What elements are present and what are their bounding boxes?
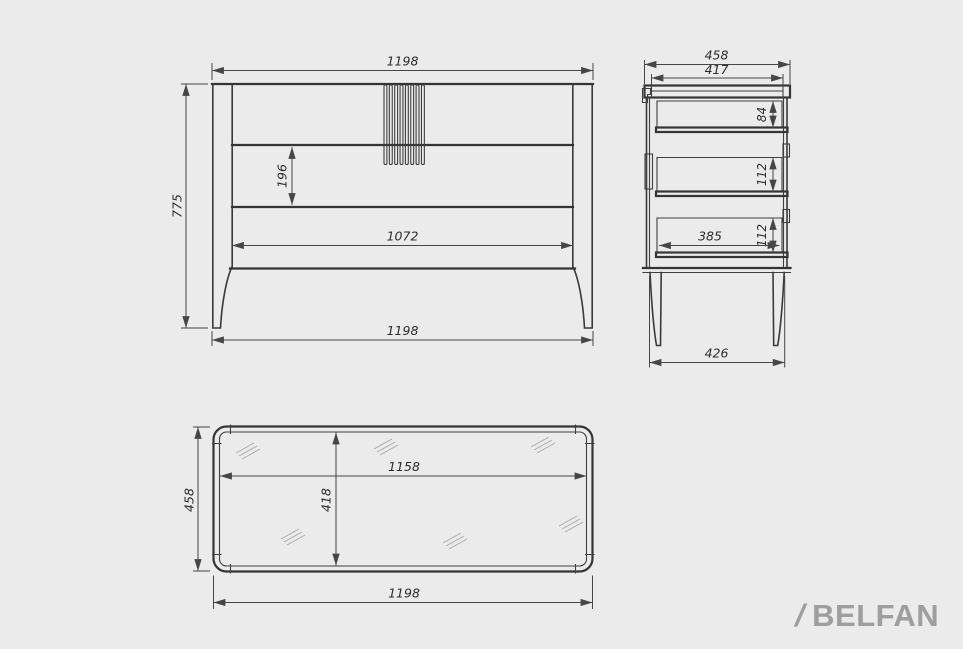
drawing-canvas: 1198 775 196 1072 1198 <box>0 0 963 649</box>
hatch-mark <box>236 443 260 459</box>
side-dim-depth: 458 <box>705 48 729 63</box>
top-dim-inner-width: 1158 <box>388 459 420 474</box>
top-dim-depth: 458 <box>182 488 197 512</box>
top-view-dimensions: 458 1158 418 1198 <box>182 427 593 609</box>
brand-logo: / BELFAN <box>796 597 956 635</box>
front-view: 1198 775 196 1072 1198 <box>170 54 594 347</box>
hatch-mark <box>281 529 305 545</box>
top-dim-inner-depth: 418 <box>319 488 334 512</box>
side-dim-drawer-depth: 385 <box>698 229 722 244</box>
top-view-body <box>213 425 595 573</box>
side-view-legs <box>650 273 784 346</box>
hatch-mark <box>443 533 467 549</box>
hatch-mark <box>374 439 398 455</box>
technical-drawing-sheet: 1198 775 196 1072 1198 <box>0 0 963 649</box>
side-dim-drawer3-height: 112 <box>755 224 769 247</box>
top-view: 458 1158 418 1198 <box>182 425 595 609</box>
front-view-dimensions: 1198 775 196 1072 1198 <box>170 54 594 347</box>
top-view-surface-hatching <box>236 437 583 549</box>
side-dim-drawer2-height: 112 <box>755 163 769 186</box>
front-dim-inner-width: 1072 <box>387 229 419 244</box>
side-dim-base-depth: 426 <box>705 346 729 361</box>
brand-logo-name: BELFAN <box>812 598 939 634</box>
top-dim-width: 1198 <box>388 586 420 601</box>
side-dim-drawer1-height: 84 <box>755 107 769 122</box>
side-dim-top-depth: 417 <box>705 62 729 77</box>
hatch-mark <box>559 516 583 532</box>
front-dim-width-top: 1198 <box>387 54 419 69</box>
front-handle-slats <box>384 85 424 165</box>
front-dim-height: 775 <box>170 194 185 218</box>
front-dim-drawer-height: 196 <box>275 164 290 188</box>
side-view-dimensions: 458 417 84 112 112 385 426 <box>645 48 791 368</box>
hatch-mark <box>531 437 555 453</box>
side-view: 458 417 84 112 112 385 426 <box>643 48 791 368</box>
front-dim-width-bottom: 1198 <box>387 323 419 338</box>
